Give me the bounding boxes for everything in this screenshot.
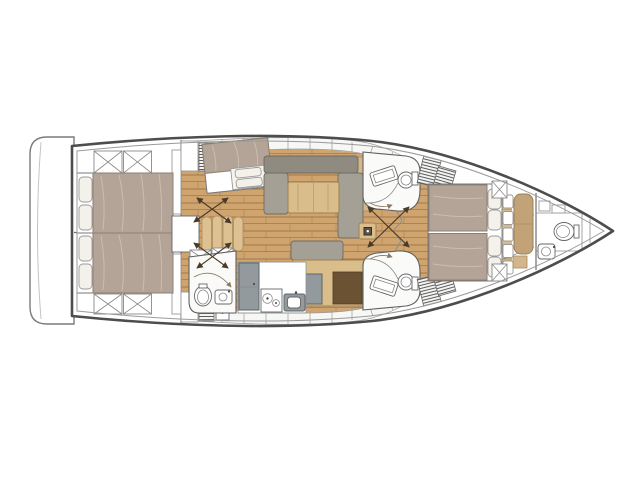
shelf: [503, 245, 513, 258]
pillow: [79, 264, 92, 289]
settee-back: [264, 156, 358, 173]
companionway: [172, 216, 243, 252]
nav-panel: [333, 272, 362, 304]
aft-head: [189, 248, 236, 313]
swim-platform: [30, 137, 74, 324]
hatch-x-icon: [94, 294, 122, 314]
nav-bench: [291, 241, 343, 260]
mid-cabin: [202, 138, 273, 194]
galley: [238, 262, 306, 313]
hatch-x-icon: [492, 181, 507, 198]
pillow: [79, 236, 92, 261]
floor-plan: Sailing yacht interior layout plan — bow…: [0, 0, 640, 479]
shelf: [539, 201, 550, 211]
interior: [74, 137, 590, 325]
hatch-x-icon: [492, 264, 507, 281]
head-sink-icon: [538, 244, 555, 259]
hatch-x-icon: [124, 151, 152, 173]
nav-seat: [306, 274, 322, 304]
settee-left: [264, 173, 288, 214]
toilet-icon: [195, 286, 212, 306]
shelf: [503, 212, 513, 225]
shelf: [503, 228, 513, 241]
hatch-x-icon: [124, 294, 152, 314]
pillow: [488, 210, 501, 230]
pillow: [79, 177, 92, 202]
pillow: [488, 236, 501, 256]
pillow: [79, 205, 92, 230]
fridge-icon: [239, 263, 259, 310]
hatch-x-icon: [94, 151, 122, 173]
